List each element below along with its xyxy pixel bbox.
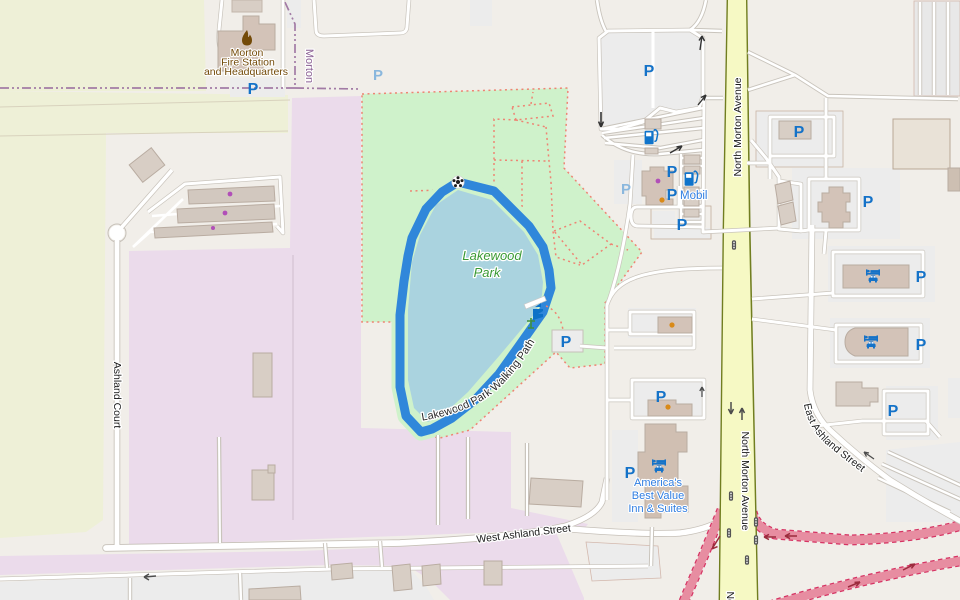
svg-text:P: P [373, 67, 383, 84]
svg-text:North Morton Avenue: North Morton Avenue [732, 77, 744, 176]
svg-text:America's: America's [634, 477, 682, 489]
svg-text:Park: Park [474, 265, 502, 280]
svg-text:Lakewood: Lakewood [462, 248, 522, 263]
svg-text:North Morton Avenue: North Morton Avenue [724, 591, 736, 600]
svg-text:P: P [621, 181, 631, 198]
svg-text:North Morton Avenue: North Morton Avenue [739, 431, 751, 530]
svg-text:Morton: Morton [303, 49, 315, 83]
svg-text:Ashland Court: Ashland Court [111, 362, 123, 429]
svg-text:Best Value: Best Value [632, 490, 684, 502]
svg-text:Inn & Suites: Inn & Suites [628, 503, 688, 515]
svg-text:Mobil: Mobil [680, 190, 707, 202]
svg-text:and Headquarters: and Headquarters [204, 66, 288, 78]
